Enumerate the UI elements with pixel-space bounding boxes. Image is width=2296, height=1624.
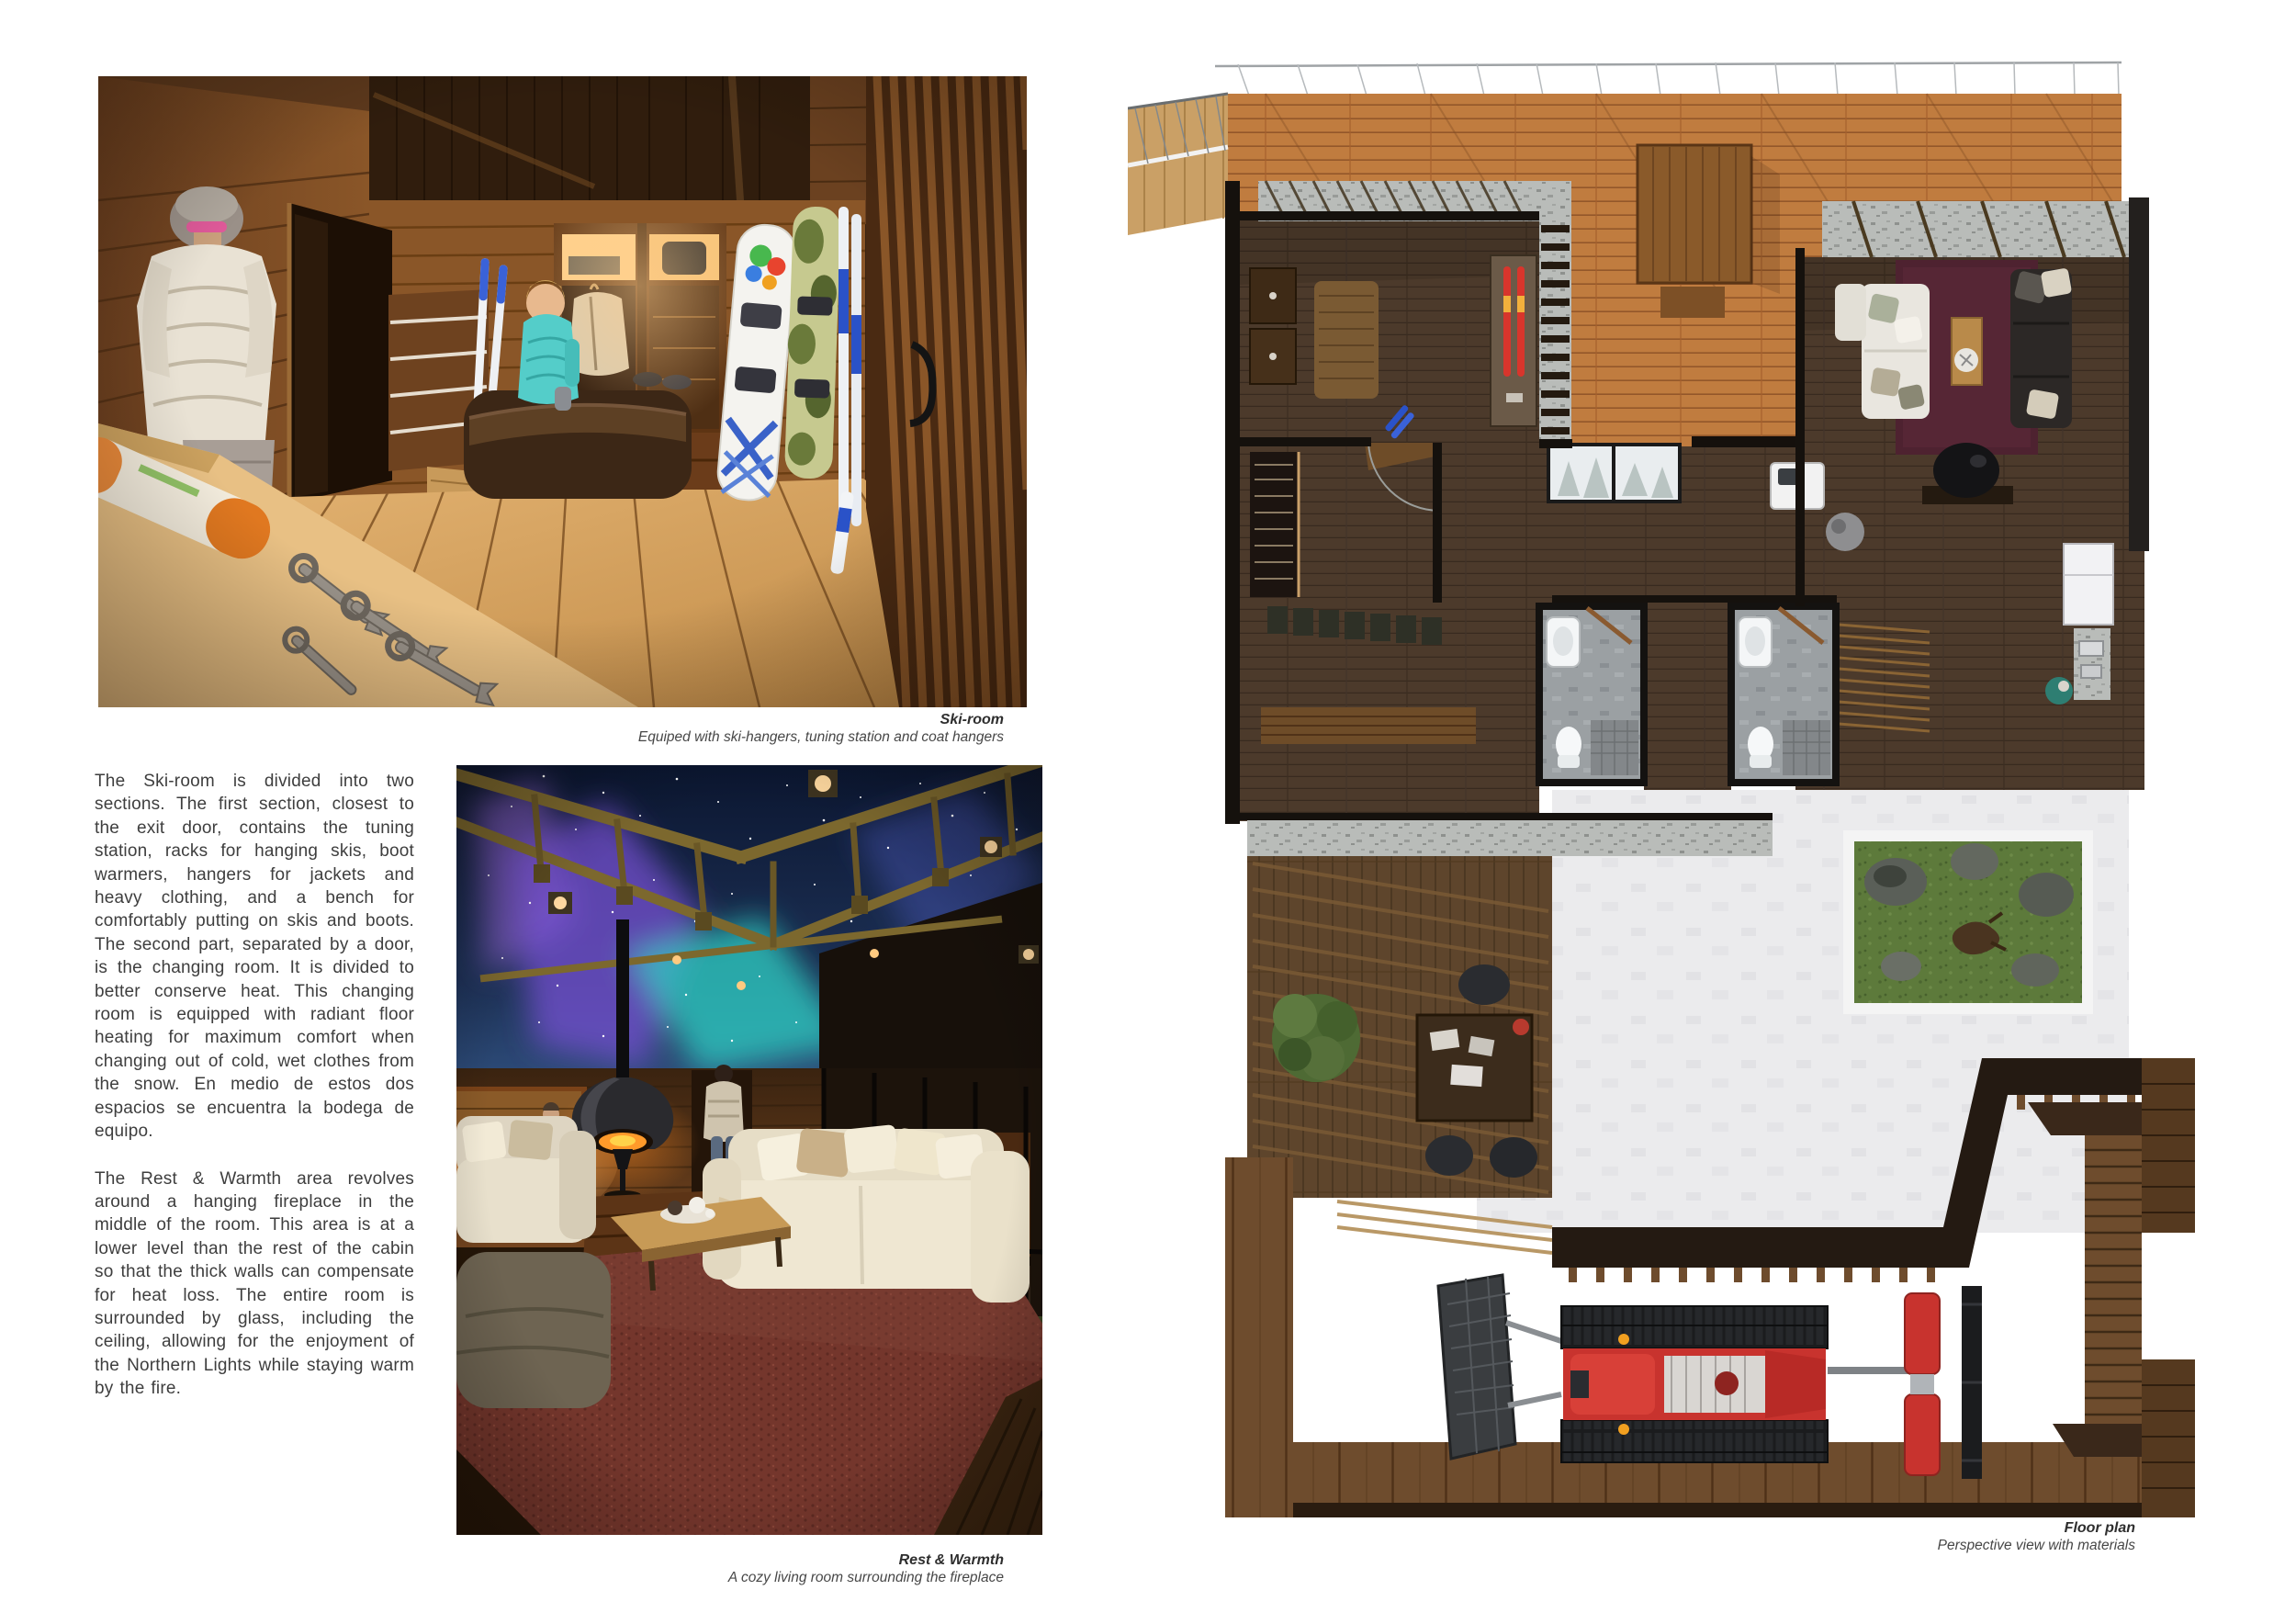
- floor-plan-caption-title: Floor plan: [1492, 1519, 2135, 1537]
- ski-room-caption-title: Ski-room: [361, 711, 1004, 728]
- floor-plan-image: [1128, 37, 2245, 1517]
- rest-warmth-caption: Rest & Warmth A cozy living room surroun…: [361, 1551, 1004, 1586]
- ski-room-illustration: [98, 76, 1027, 707]
- coffee-table-plan: [1952, 318, 1982, 385]
- paragraph-rest-warmth: The Rest & Warmth area revolves around a…: [95, 1167, 414, 1401]
- office-plant: [1272, 994, 1360, 1082]
- deck-walkway: [1128, 94, 1228, 235]
- floor-plan-caption: Floor plan Perspective view with materia…: [1492, 1519, 2135, 1554]
- ski-room-photo: [98, 76, 1027, 707]
- ski-room-caption-subtitle: Equiped with ski-hangers, tuning station…: [361, 728, 1004, 746]
- rest-warmth-caption-title: Rest & Warmth: [361, 1551, 1004, 1569]
- floor-plan-caption-subtitle: Perspective view with materials: [1492, 1537, 2135, 1554]
- dark-sofa: [2010, 267, 2072, 428]
- ski-room-caption: Ski-room Equiped with ski-hangers, tunin…: [361, 711, 1004, 746]
- presentation-board: Ski-room Equiped with ski-hangers, tunin…: [0, 0, 2296, 1624]
- snowcat-body: [1563, 1334, 1826, 1435]
- rest-warmth-illustration: [456, 765, 1042, 1535]
- rest-warmth-caption-subtitle: A cozy living room surrounding the firep…: [361, 1569, 1004, 1586]
- description-text: The Ski-room is divided into two section…: [95, 770, 414, 1425]
- bathroom-1: [1539, 606, 1644, 783]
- garden-patio: [1843, 830, 2093, 1014]
- paragraph-ski-room: The Ski-room is divided into two section…: [95, 770, 414, 1144]
- floor-plan-illustration: [1128, 37, 2245, 1517]
- rest-warmth-photo: [456, 765, 1042, 1535]
- bathroom-2: [1731, 606, 1836, 783]
